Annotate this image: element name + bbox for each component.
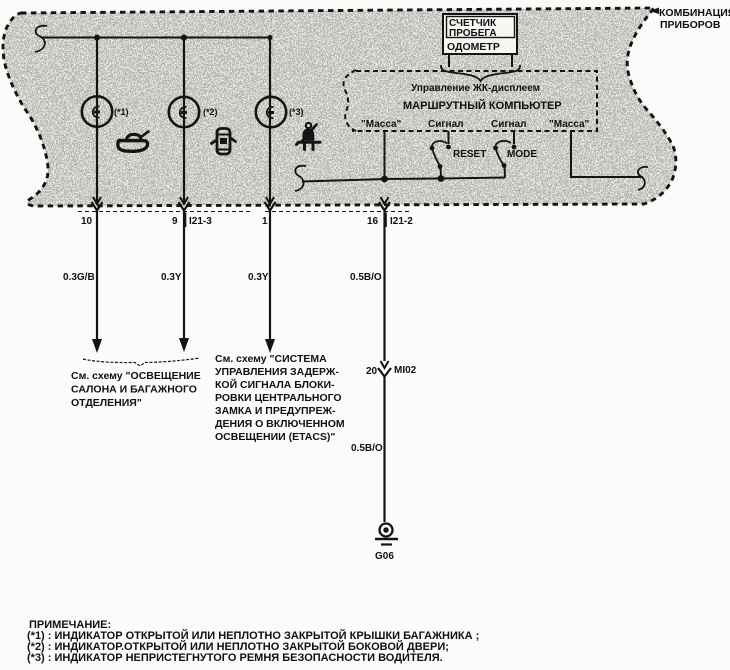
svg-text:(*1): (*1)	[114, 107, 129, 117]
svg-text:КОЙ СИГНАЛА БЛОКИ-: КОЙ СИГНАЛА БЛОКИ-	[215, 378, 335, 391]
svg-text:I21-3: I21-3	[189, 216, 212, 227]
svg-text:1: 1	[262, 216, 268, 227]
svg-text:G06: G06	[375, 551, 394, 562]
svg-text:ДЕНИЯ О ВКЛЮЧЕННОМ: ДЕНИЯ О ВКЛЮЧЕННОМ	[215, 418, 345, 430]
svg-text:"Масса": "Масса"	[361, 119, 402, 130]
svg-text:КОМБИНАЦИЯ: КОМБИНАЦИЯ	[659, 7, 730, 19]
svg-text:0.3Y: 0.3Y	[248, 272, 269, 283]
svg-text:10: 10	[81, 216, 93, 227]
svg-text:9: 9	[172, 216, 178, 227]
svg-text:ЗАМКА И ПРЕДУПРЕЖ-: ЗАМКА И ПРЕДУПРЕЖ-	[215, 405, 336, 417]
svg-text:(*3) : ИНДИКАТОР НЕПРИСТЕГНУТО: (*3) : ИНДИКАТОР НЕПРИСТЕГНУТОГО РЕМНЯ Б…	[27, 652, 443, 664]
svg-text:Сигнал: Сигнал	[491, 119, 527, 130]
svg-text:0.5В/O: 0.5В/O	[351, 443, 383, 454]
svg-text:(*3): (*3)	[289, 107, 304, 117]
svg-text:ОДОМЕТР: ОДОМЕТР	[447, 41, 500, 53]
svg-text:0.5B/O: 0.5B/O	[350, 272, 382, 283]
svg-text:0.3Y: 0.3Y	[161, 272, 182, 283]
svg-text:MI02: MI02	[394, 365, 417, 376]
svg-text:См. схему "ОСВЕЩЕНИЕ: См. схему "ОСВЕЩЕНИЕ	[71, 370, 201, 382]
svg-text:I21-2: I21-2	[390, 216, 413, 227]
svg-text:МАРШРУТНЫЙ КОМПЬЮТЕР: МАРШРУТНЫЙ КОМПЬЮТЕР	[403, 99, 562, 112]
svg-text:ОТДЕЛЕНИЯ": ОТДЕЛЕНИЯ"	[71, 397, 142, 409]
svg-text:0.3G/B: 0.3G/B	[63, 272, 95, 283]
svg-text:ОСВЕЩЕНИИ (ETACS)": ОСВЕЩЕНИИ (ETACS)"	[215, 431, 335, 443]
svg-text:САЛОНА И БАГАЖНОГО: САЛОНА И БАГАЖНОГО	[71, 384, 197, 396]
svg-text:RESET: RESET	[453, 149, 486, 160]
svg-text:20: 20	[366, 366, 378, 377]
svg-text:ПРОБЕГА: ПРОБЕГА	[449, 28, 497, 39]
svg-text:(*2): (*2)	[203, 107, 218, 117]
svg-text:ПРИБОРОВ: ПРИБОРОВ	[660, 19, 721, 31]
svg-text:16: 16	[367, 216, 379, 227]
svg-text:УПРАВЛЕНИЯ ЗАДЕРЖ-: УПРАВЛЕНИЯ ЗАДЕРЖ-	[215, 366, 339, 378]
svg-text:РОВКИ ЦЕНТРАЛЬНОГО: РОВКИ ЦЕНТРАЛЬНОГО	[215, 392, 342, 404]
svg-text:Сигнал: Сигнал	[428, 119, 464, 130]
svg-text:MODE: MODE	[507, 149, 537, 160]
svg-text:"Масса": "Масса"	[549, 119, 590, 130]
svg-text:Управление ЖК-дисплеем: Управление ЖК-дисплеем	[411, 83, 540, 94]
svg-text:См. схему "СИСТЕМА: См. схему "СИСТЕМА	[215, 353, 327, 365]
